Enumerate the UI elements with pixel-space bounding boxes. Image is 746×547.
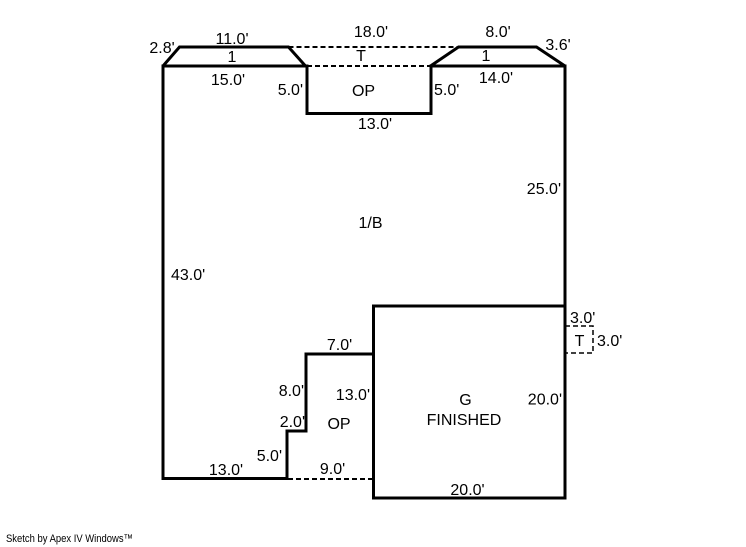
svg-text:9.0': 9.0' — [320, 461, 345, 478]
svg-text:8.0': 8.0' — [279, 383, 304, 400]
svg-text:Sketch by Apex IV Windows™: Sketch by Apex IV Windows™ — [6, 533, 133, 545]
svg-text:13.0': 13.0' — [336, 387, 370, 404]
svg-text:1: 1 — [228, 49, 237, 66]
svg-text:14.0': 14.0' — [479, 70, 513, 87]
svg-text:13.0': 13.0' — [358, 116, 392, 133]
svg-text:T: T — [356, 48, 366, 65]
svg-text:G: G — [459, 392, 471, 409]
svg-text:T: T — [575, 333, 585, 350]
svg-text:1: 1 — [482, 48, 491, 65]
svg-text:1/B: 1/B — [358, 215, 382, 232]
svg-text:3.6': 3.6' — [545, 37, 570, 54]
svg-text:20.0': 20.0' — [528, 392, 562, 409]
svg-text:11.0': 11.0' — [215, 31, 248, 48]
svg-text:2.8': 2.8' — [149, 40, 174, 57]
svg-text:5.0': 5.0' — [434, 82, 459, 99]
svg-text:FINISHED: FINISHED — [427, 412, 502, 429]
svg-text:25.0': 25.0' — [527, 181, 561, 198]
svg-text:3.0': 3.0' — [570, 310, 595, 327]
svg-text:18.0': 18.0' — [354, 24, 388, 41]
svg-text:OP: OP — [352, 83, 375, 100]
svg-text:2.0': 2.0' — [280, 414, 305, 431]
svg-text:43.0': 43.0' — [171, 267, 205, 284]
svg-text:15.0': 15.0' — [211, 72, 245, 89]
svg-text:7.0': 7.0' — [327, 337, 352, 354]
svg-text:OP: OP — [327, 416, 350, 433]
svg-text:5.0': 5.0' — [278, 82, 303, 99]
svg-text:3.0': 3.0' — [597, 333, 622, 350]
svg-text:20.0': 20.0' — [450, 482, 484, 499]
svg-text:13.0': 13.0' — [209, 462, 243, 479]
svg-text:5.0': 5.0' — [257, 448, 282, 465]
svg-text:8.0': 8.0' — [485, 24, 510, 41]
